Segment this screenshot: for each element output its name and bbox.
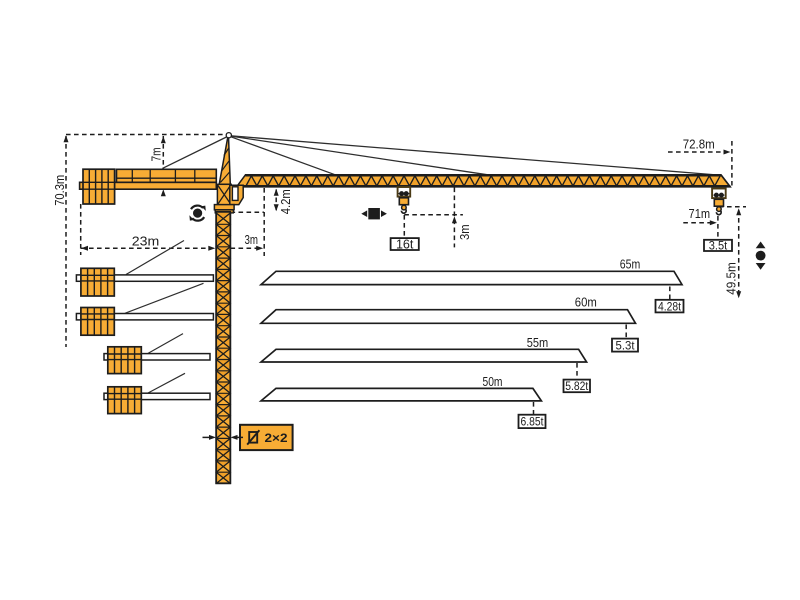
svg-text:6.85t: 6.85t: [521, 415, 545, 429]
svg-text:50m: 50m: [483, 374, 503, 389]
svg-text:49.5m: 49.5m: [724, 262, 739, 295]
svg-text:55m: 55m: [527, 335, 549, 350]
svg-text:70.3m: 70.3m: [52, 175, 67, 206]
svg-text:4.28t: 4.28t: [658, 299, 682, 313]
svg-text:5.82t: 5.82t: [565, 379, 589, 393]
svg-text:23m: 23m: [132, 233, 160, 248]
svg-text:3.5t: 3.5t: [709, 239, 728, 253]
svg-text:16t: 16t: [396, 236, 414, 251]
svg-text:71m: 71m: [689, 206, 711, 221]
svg-text:3m: 3m: [244, 232, 258, 247]
svg-text:3m: 3m: [457, 224, 472, 240]
svg-text:2×2: 2×2: [265, 431, 288, 445]
svg-text:5.3t: 5.3t: [616, 338, 636, 352]
svg-text:72.8m: 72.8m: [683, 136, 715, 151]
svg-text:7m: 7m: [149, 147, 164, 161]
svg-text:65m: 65m: [620, 256, 641, 271]
svg-text:4.2m: 4.2m: [278, 189, 293, 214]
svg-text:60m: 60m: [575, 295, 597, 310]
